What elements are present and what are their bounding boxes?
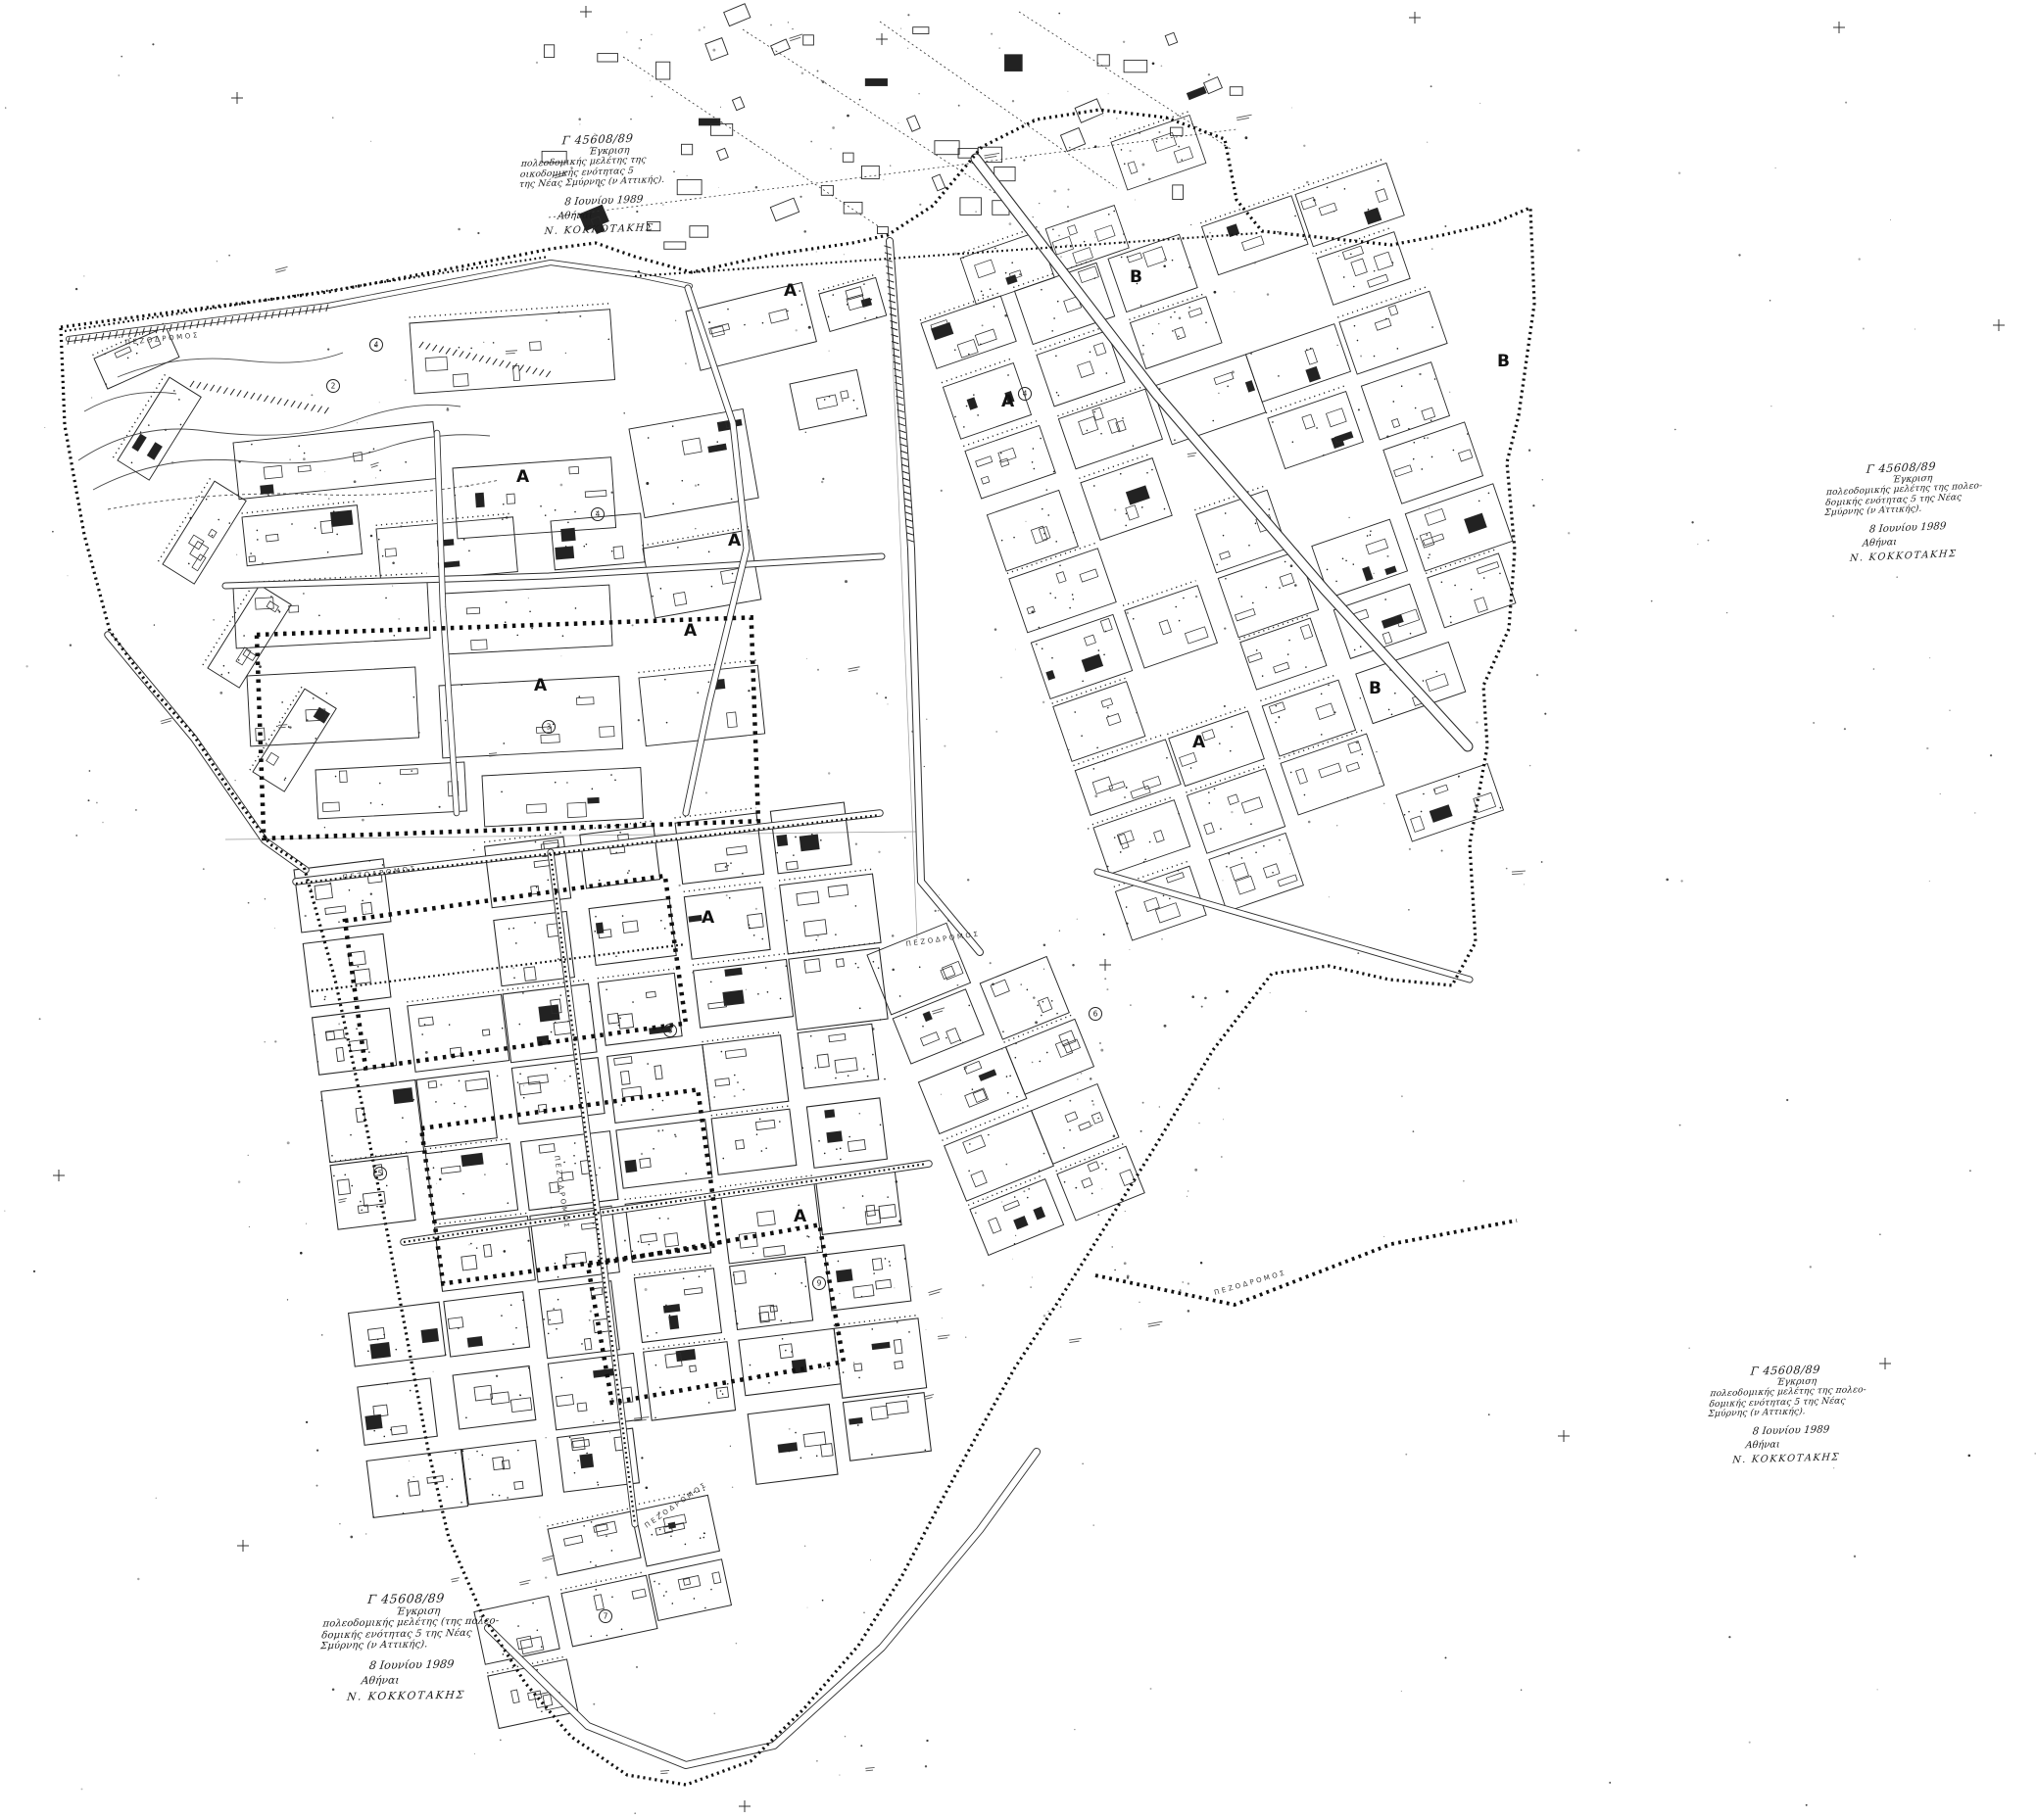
zone-letter: A: [516, 467, 530, 487]
district-grids: [293, 112, 1558, 1729]
plus-mark: [1879, 1358, 1891, 1369]
svg-text:3: 3: [547, 723, 552, 732]
svg-text:4: 4: [596, 510, 601, 519]
micro-labels: [161, 34, 1526, 1774]
scan-noise: [4, 13, 2036, 1814]
zone-letter: B: [1369, 679, 1382, 698]
zone-letter: A: [702, 908, 715, 928]
zone-letter-labels: ABABAAABAAAA: [516, 267, 1510, 1226]
street-name-label: ΠΕΖΟΔΡΟΜΟΣ: [342, 865, 417, 882]
zone-letter: A: [684, 621, 698, 641]
zone-letter: A: [784, 281, 798, 301]
svg-text:5: 5: [378, 1170, 383, 1178]
plus-mark: [876, 33, 888, 45]
svg-text:6: 6: [1093, 1010, 1098, 1019]
top-scatter: [542, 4, 1242, 250]
plus-mark: [237, 1540, 249, 1552]
plus-mark: [1558, 1430, 1570, 1442]
map-canvas: 4248546397ΠΕΖΟΔΡΟΜΟΣΠΕΖΟΔΡΟΜΟΣΠΕΖΟΔΡΟΜΟΣ…: [0, 0, 2036, 1820]
svg-text:4: 4: [1023, 390, 1028, 399]
svg-text:2: 2: [331, 382, 336, 391]
zone-letter: A: [1001, 392, 1015, 411]
study-area-boundary: [61, 110, 1534, 1785]
svg-text:7: 7: [604, 1612, 608, 1621]
plus-mark: [1993, 319, 2005, 331]
dotted-streets: [65, 233, 1258, 1524]
plus-mark: [1409, 12, 1421, 24]
zone-letter: B: [1497, 352, 1510, 371]
plus-mark: [53, 1170, 65, 1181]
plus-mark: [231, 92, 243, 104]
scanned-plan-sheet: 4248546397ΠΕΖΟΔΡΟΜΟΣΠΕΖΟΔΡΟΜΟΣΠΕΖΟΔΡΟΜΟΣ…: [0, 0, 2036, 1820]
plus-mark: [1833, 22, 1845, 33]
zone-letter: A: [534, 676, 548, 695]
street-name-label: ΠΕΖΟΔΡΟΜΟΣ: [644, 1480, 709, 1529]
plus-mark: [739, 1800, 751, 1812]
svg-text:8: 8: [668, 1027, 673, 1035]
plus-mark: [1099, 959, 1111, 971]
zone-letter: A: [1192, 733, 1206, 752]
plus-mark: [580, 6, 592, 18]
svg-text:9: 9: [817, 1279, 822, 1288]
street-name-label: ΠΕΖΟΔΡΟΜΟΣ: [1213, 1269, 1287, 1297]
svg-text:4: 4: [374, 341, 379, 350]
zone-letter: A: [728, 531, 742, 551]
zone-letter: B: [1130, 267, 1142, 287]
zone-letter: A: [794, 1207, 807, 1226]
upper-left-blocks: [92, 274, 887, 827]
